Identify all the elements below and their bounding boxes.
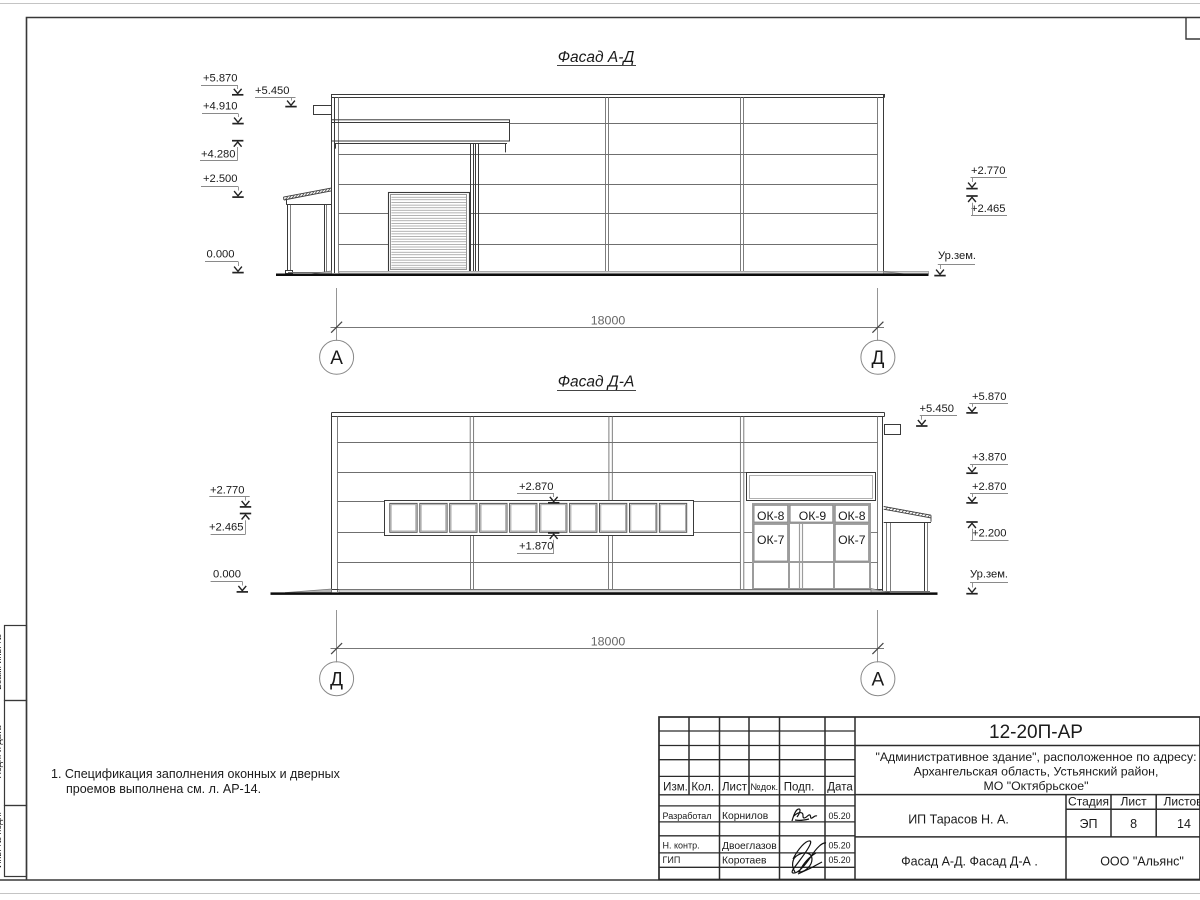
- svg-text:ГИП: ГИП: [663, 855, 681, 865]
- svg-text:ОК-8: ОК-8: [838, 509, 866, 523]
- svg-text:05.20: 05.20: [828, 811, 850, 821]
- svg-text:+2.870: +2.870: [972, 481, 1007, 493]
- svg-text:Архангельская область, Устьянс: Архангельская область, Устьянский район,: [914, 764, 1159, 778]
- svg-text:Фасад А-Д. Фасад Д-А .: Фасад А-Д. Фасад Д-А .: [901, 855, 1038, 869]
- svg-text:+2.465: +2.465: [209, 522, 244, 534]
- svg-text:Н. контр.: Н. контр.: [663, 841, 700, 851]
- svg-text:Дата: Дата: [827, 781, 853, 793]
- svg-text:+2.870: +2.870: [519, 481, 554, 493]
- svg-text:18000: 18000: [591, 313, 626, 327]
- svg-text:Д: Д: [871, 348, 884, 369]
- svg-text:+2.770: +2.770: [971, 165, 1006, 177]
- svg-text:Изм.: Изм.: [663, 781, 688, 793]
- svg-text:МО "Октябрьское": МО "Октябрьское": [984, 779, 1089, 793]
- svg-text:+5.870: +5.870: [203, 73, 238, 85]
- svg-text:Фасад А-Д: Фасад А-Д: [558, 49, 635, 66]
- svg-text:Подп.: Подп.: [784, 781, 815, 793]
- svg-text:А: А: [872, 670, 885, 691]
- svg-text:18000: 18000: [591, 635, 626, 649]
- svg-text:ОК-9: ОК-9: [799, 509, 827, 523]
- svg-text:ОК-7: ОК-7: [838, 533, 866, 547]
- svg-text:+2.465: +2.465: [971, 203, 1006, 215]
- svg-text:05.20: 05.20: [828, 855, 850, 865]
- svg-text:Листов: Листов: [1164, 795, 1200, 809]
- svg-text:+2.500: +2.500: [203, 173, 238, 185]
- svg-text:ЭП: ЭП: [1080, 817, 1098, 831]
- svg-text:14: 14: [1177, 817, 1191, 831]
- svg-text:Лист: Лист: [722, 781, 748, 793]
- svg-text:ОК-8: ОК-8: [757, 509, 785, 523]
- svg-text:проемов выполнена см. л. АР-14: проемов выполнена см. л. АР-14.: [66, 782, 261, 796]
- svg-text:+5.450: +5.450: [255, 85, 290, 97]
- svg-text:1. Спецификация заполнения око: 1. Спецификация заполнения оконных и две…: [51, 767, 341, 781]
- svg-text:Фасад Д-А: Фасад Д-А: [558, 374, 635, 391]
- svg-text:ИП Тарасов Н. А.: ИП Тарасов Н. А.: [908, 813, 1009, 827]
- svg-text:Взам. инв. №: Взам. инв. №: [0, 634, 3, 690]
- svg-text:8: 8: [1130, 817, 1137, 831]
- svg-text:Ур.зем.: Ур.зем.: [938, 250, 976, 262]
- svg-text:0.000: 0.000: [213, 569, 241, 581]
- svg-text:+2.770: +2.770: [210, 484, 245, 496]
- svg-text:Стадия: Стадия: [1068, 795, 1109, 809]
- svg-text:Кол.: Кол.: [691, 781, 714, 793]
- svg-text:Подп. и дата: Подп. и дата: [0, 725, 3, 778]
- svg-text:"Административное здание", рас: "Административное здание", расположенное…: [875, 750, 1196, 764]
- svg-text:Корнилов: Корнилов: [722, 811, 769, 822]
- svg-text:0.000: 0.000: [207, 248, 235, 260]
- svg-text:+5.450: +5.450: [919, 403, 954, 415]
- svg-text:Д: Д: [330, 670, 343, 691]
- svg-text:+3.870: +3.870: [972, 451, 1007, 463]
- svg-text:Инв. № подл.: Инв. № подл.: [0, 812, 3, 868]
- svg-text:+4.280: +4.280: [201, 149, 236, 161]
- svg-text:+5.870: +5.870: [972, 391, 1007, 403]
- svg-text:Коротаев: Коротаев: [722, 855, 767, 866]
- svg-text:05.20: 05.20: [828, 841, 850, 851]
- svg-text:№док.: №док.: [750, 782, 778, 793]
- svg-text:Лист: Лист: [1121, 795, 1148, 809]
- svg-text:Разработал: Разработал: [663, 811, 712, 821]
- svg-text:Двоеглазов: Двоеглазов: [722, 841, 777, 852]
- svg-text:Ур.зем.: Ур.зем.: [970, 569, 1008, 581]
- svg-text:ООО "Альянс": ООО "Альянс": [1100, 855, 1184, 869]
- svg-text:ОК-7: ОК-7: [757, 533, 785, 547]
- svg-text:+1.870: +1.870: [519, 540, 554, 552]
- svg-text:+2.200: +2.200: [972, 527, 1007, 539]
- svg-text:А: А: [330, 348, 343, 369]
- svg-text:+4.910: +4.910: [203, 101, 238, 113]
- svg-text:12-20П-АР: 12-20П-АР: [989, 722, 1083, 743]
